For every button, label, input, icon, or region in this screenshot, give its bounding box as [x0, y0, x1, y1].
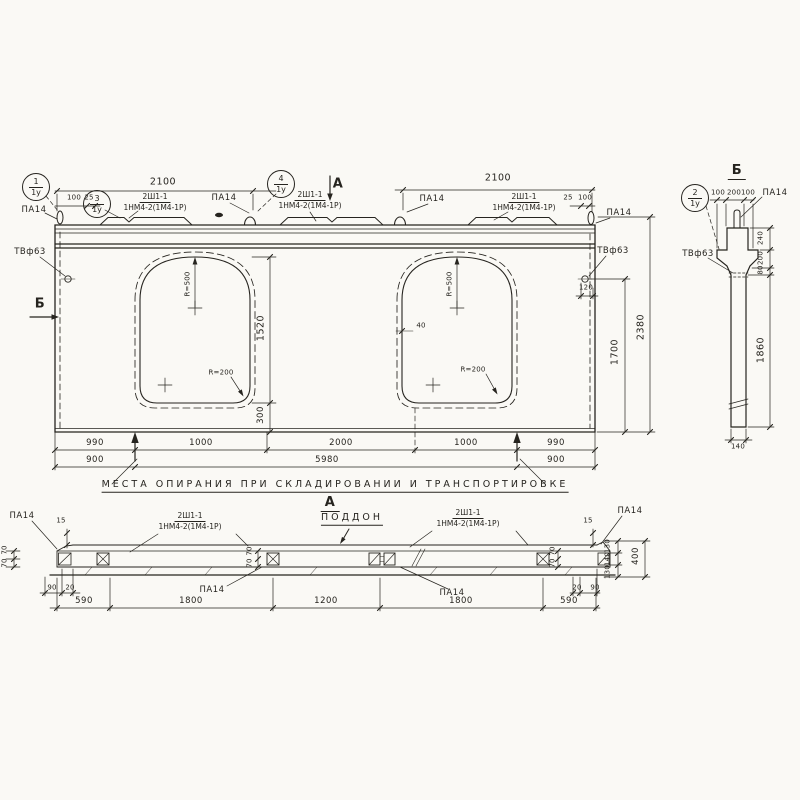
dim-5980: 5980	[315, 456, 339, 465]
rebar-mark-top-2-line2: 1НМ4-2(1М4-1Р)	[279, 201, 342, 210]
dim-1520: 1520	[256, 315, 266, 341]
dim-80: 80	[758, 265, 765, 274]
balloon-1-num: 1	[29, 177, 42, 188]
balloon-2-den: 1у	[690, 199, 700, 208]
dim-900-left: 900	[86, 456, 104, 465]
section-a-title: А	[321, 496, 340, 512]
dim-20-right: 20	[572, 585, 581, 592]
dim-400: 400	[632, 547, 641, 565]
dim-130-top: 130	[605, 539, 612, 553]
dim-2100-right: 2100	[485, 173, 511, 183]
dim-590-left: 590	[75, 597, 93, 606]
dim-1800-left: 1800	[179, 597, 203, 606]
dim-1200: 1200	[314, 597, 338, 606]
section-b-marker: Б	[31, 298, 49, 313]
pa14-label-top-3: ПА14	[419, 195, 444, 204]
dim-100-top-right: 100	[578, 195, 592, 202]
dim-240: 240	[758, 231, 765, 245]
top-view-panel	[55, 211, 595, 432]
dim-70-left-2: 70	[2, 558, 9, 567]
tv63-label-section-b: ТВф63	[682, 250, 714, 259]
rebar-mark-top-1: 2Ш1-1 1НМ4-2(1М4-1Р)	[124, 192, 187, 213]
dim-990-right: 990	[547, 439, 565, 448]
rebar-mark-bottom-2-line1: 2Ш1-1	[452, 508, 483, 519]
dim-1860: 1860	[756, 337, 766, 363]
radius-200-right: R=200	[460, 367, 485, 374]
dim-140-b: 140	[731, 444, 745, 451]
dim-1000-left: 1000	[189, 439, 213, 448]
rebar-mark-top-3-line1: 2Ш1-1	[508, 192, 539, 203]
pa14-label-section-b: ПА14	[762, 189, 787, 198]
dim-2380: 2380	[636, 314, 646, 340]
rebar-mark-top-1-line1: 2Ш1-1	[139, 192, 170, 203]
tv63-label-right: ТВф63	[597, 247, 629, 256]
rebar-mark-bottom-2: 2Ш1-1 1НМ4-2(1М4-1Р)	[437, 508, 500, 529]
dim-25-top-right: 25	[563, 195, 572, 202]
dim-990-left: 990	[86, 439, 104, 448]
dim-100-b-right: 100	[741, 190, 755, 197]
radius-500-left: R=500	[185, 271, 192, 296]
dim-200-b-side: 200	[758, 251, 765, 265]
dim-590-right: 590	[560, 597, 578, 606]
poddon-label: ПОДДОН	[321, 513, 383, 526]
support-note: МЕСТА ОПИРАНИЯ ПРИ СКЛАДИРОВАНИИ И ТРАНС…	[102, 480, 569, 493]
dim-15-left: 15	[56, 518, 65, 525]
dim-300: 300	[257, 406, 266, 424]
dim-140-mid: 140	[605, 552, 612, 566]
dim-200-b: 200	[727, 190, 741, 197]
dim-25-top-left: 25	[84, 195, 93, 202]
rebar-mark-bottom-1-line1: 2Ш1-1	[174, 511, 205, 522]
balloon-1-den: 1у	[31, 188, 41, 197]
dim-40: 40	[416, 323, 425, 330]
drawing-canvas	[0, 0, 800, 800]
rebar-mark-top-1-line2: 1НМ4-2(1М4-1Р)	[124, 203, 187, 212]
pa14-label-top-left: ПА14	[21, 206, 46, 215]
pa14-label-bottom-right: ПА14	[617, 507, 642, 516]
rebar-mark-top-2: 2Ш1-1 1НМ4-2(1М4-1Р)	[279, 190, 342, 211]
drawing-sheet: 1 1у 3 1у 4 1у 2 1у ПА14 100 25 2100 2Ш1…	[0, 0, 800, 800]
pa14-label-top-right: ПА14	[606, 209, 631, 218]
balloon-4-num: 4	[274, 174, 287, 185]
dim-90-left: 90	[47, 585, 56, 592]
dim-90-right: 90	[590, 585, 599, 592]
pa14-label-top-2: ПА14	[211, 194, 236, 203]
dim-100-b-left: 100	[711, 190, 725, 197]
tv63-label-left: ТВф63	[14, 248, 46, 257]
section-b-title: Б	[728, 164, 746, 180]
dim-130-bottom: 130	[605, 565, 612, 579]
dim-70-right-1: 70	[550, 546, 557, 555]
rebar-mark-bottom-2-line2: 1НМ4-2(1М4-1Р)	[437, 519, 500, 528]
dim-900-right: 900	[547, 456, 565, 465]
dim-100-top-left: 100	[67, 195, 81, 202]
balloon-2: 2 1у	[681, 184, 709, 212]
dim-70-mid-1: 70	[247, 546, 254, 555]
pa14-label-bottom-left: ПА14	[9, 512, 34, 521]
radius-500-right: R=500	[447, 271, 454, 296]
dim-70-mid-2: 70	[247, 558, 254, 567]
balloon-1: 1 1у	[22, 173, 50, 201]
dim-15-right: 15	[583, 518, 592, 525]
dim-1700: 1700	[610, 339, 620, 365]
dim-120: 120	[579, 285, 593, 292]
dim-70-right-2: 70	[550, 558, 557, 567]
rebar-mark-bottom-1-line2: 1НМ4-2(1М4-1Р)	[159, 522, 222, 531]
dim-1800-right: 1800	[449, 597, 473, 606]
rebar-mark-bottom-1: 2Ш1-1 1НМ4-2(1М4-1Р)	[159, 511, 222, 532]
balloon-2-num: 2	[688, 188, 701, 199]
radius-200-left: R=200	[208, 370, 233, 377]
dim-2000: 2000	[329, 439, 353, 448]
dim-20-left: 20	[65, 585, 74, 592]
rebar-mark-top-2-line1: 2Ш1-1	[294, 190, 325, 201]
dim-2100-left: 2100	[150, 177, 176, 187]
rebar-mark-top-3: 2Ш1-1 1НМ4-2(1М4-1Р)	[493, 192, 556, 213]
dim-1000-right: 1000	[454, 439, 478, 448]
pa14-label-bottom-mid-1: ПА14	[199, 586, 224, 595]
balloon-3-den: 1у	[92, 205, 102, 214]
rebar-mark-top-3-line2: 1НМ4-2(1М4-1Р)	[493, 203, 556, 212]
dim-70-left-1: 70	[2, 545, 9, 554]
